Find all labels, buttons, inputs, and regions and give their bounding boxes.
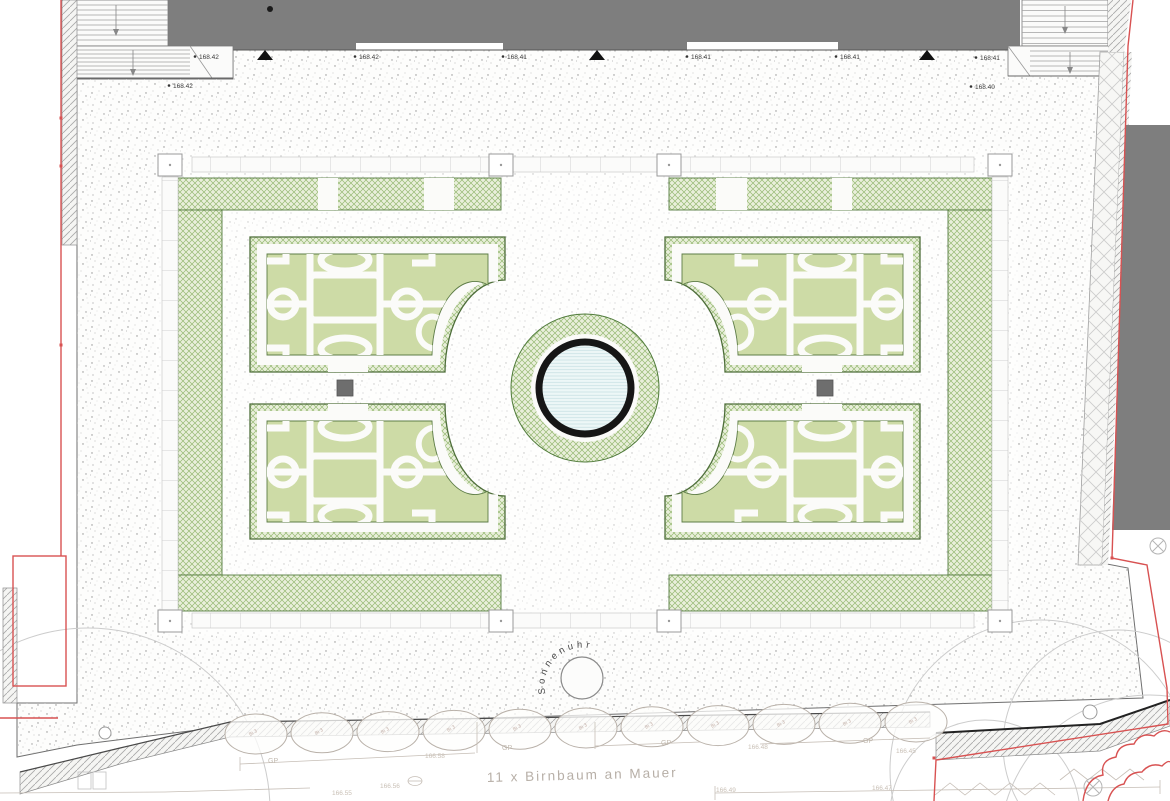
elevation-label: 168.41	[691, 54, 711, 61]
stair-top-right	[1008, 0, 1110, 76]
svg-text:166.47: 166.47	[872, 785, 892, 792]
plan-drawing: Sonnenuhr Bi 3 Bi 3 Bi 3 Bi 3 Bi 3 Bi 3 …	[0, 0, 1170, 801]
elevation-label: 168.41	[840, 54, 860, 61]
svg-text:166.58: 166.58	[425, 753, 445, 760]
gp-mark: GP	[268, 758, 278, 765]
facade-recess	[687, 42, 838, 50]
gp-mark: GP	[661, 740, 671, 747]
svg-text:166.48: 166.48	[748, 744, 768, 751]
gp-mark: GP	[502, 745, 512, 752]
svg-text:166.45: 166.45	[896, 748, 916, 755]
column-dot	[267, 6, 273, 12]
svg-text:166.56: 166.56	[380, 783, 400, 790]
red-tree-scallop	[1108, 762, 1170, 801]
fountain-basin	[539, 342, 631, 434]
elevation-label: 168.42	[199, 54, 219, 61]
elevation-label: 168.41	[507, 54, 527, 61]
tree-row-annotation: 11 x Birnbaum an Mauer	[487, 765, 678, 785]
gp-mark: GP	[863, 738, 873, 745]
garden-plan-canvas: Sonnenuhr Bi 3 Bi 3 Bi 3 Bi 3 Bi 3 Bi 3 …	[0, 0, 1170, 801]
elevation-label: 168.42	[173, 83, 193, 90]
svg-text:166.49: 166.49	[716, 787, 736, 794]
elevation-label: 168.41	[980, 55, 1000, 62]
svg-text:166.55: 166.55	[332, 790, 352, 797]
elevation-label: 168.40	[975, 84, 995, 91]
facade-recess	[356, 43, 503, 50]
fountain	[511, 314, 659, 462]
elevation-label: 168.42	[359, 54, 379, 61]
